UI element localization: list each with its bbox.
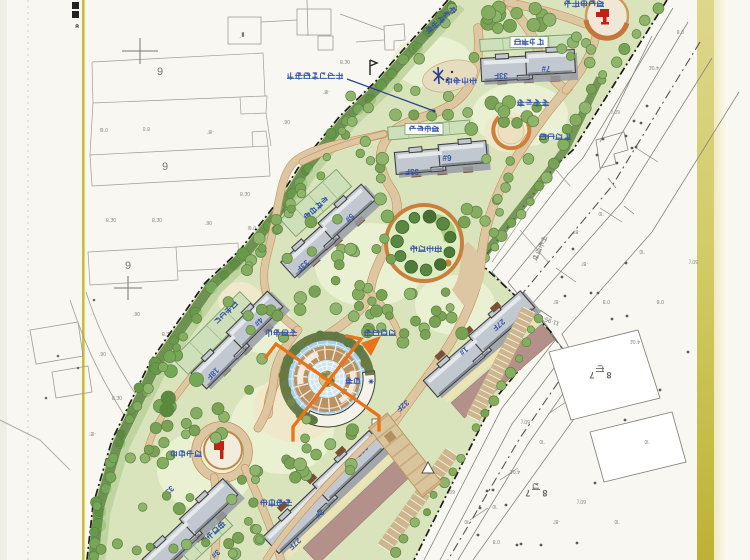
svg-text:·8lˉ: ·8lˉ	[552, 518, 560, 524]
svg-text:·8lˉ: ·8lˉ	[580, 260, 588, 266]
svg-text:7: 7	[589, 370, 594, 380]
svg-text:9: 9	[157, 66, 163, 78]
svg-text:ˉl0: ˉl0	[598, 210, 604, 216]
svg-text:0ˉ8: 0ˉ8	[677, 28, 684, 34]
svg-text:06ˉ: 06ˉ	[282, 118, 290, 124]
svg-text:✳: ✳	[368, 378, 374, 386]
svg-text:60ˉ(: 60ˉ(	[521, 418, 530, 424]
svg-text:·8lˉ: ·8lˉ	[572, 228, 580, 234]
svg-text:9: 9	[125, 260, 131, 272]
svg-text:06ˉ: 06ˉ	[132, 310, 140, 316]
svg-text:0£ˉ8: 0£ˉ8	[340, 58, 350, 64]
svg-text:6#: 6#	[442, 153, 451, 162]
svg-text:0ˉ6l: 0ˉ6l	[248, 224, 256, 230]
svg-text:0£ˉ8: 0£ˉ8	[112, 394, 122, 400]
svg-text:0ˉ8: 0ˉ8	[603, 298, 610, 304]
svg-text:60ˉ(: 60ˉ(	[689, 258, 698, 264]
svg-text:0£ˉ8: 0£ˉ8	[240, 190, 250, 196]
svg-text:8: 8	[606, 370, 611, 380]
svg-text:0ˉ8: 0ˉ8	[493, 538, 500, 544]
svg-text:4ˉ0£: 4ˉ0£	[510, 468, 520, 474]
svg-text:60ˉ(: 60ˉ(	[577, 498, 586, 504]
svg-text:7: 7	[525, 488, 530, 498]
svg-text:0£ˉ8: 0£ˉ8	[106, 216, 116, 222]
svg-text:▮ˉ: ▮ˉ	[239, 31, 244, 37]
svg-text:60ˉ(: 60ˉ(	[611, 108, 620, 114]
svg-text:·l8ˉ: ·l8ˉ	[88, 430, 96, 436]
svg-text:ˉl0: ˉl0	[644, 438, 650, 444]
svg-text:·l8ˉ: ·l8ˉ	[206, 128, 214, 134]
svg-text:«: «	[73, 24, 82, 29]
svg-text:0ˉ8: 0ˉ8	[657, 298, 664, 304]
svg-text:0£ˉ8: 0£ˉ8	[152, 216, 162, 222]
svg-text:·l8ˉ: ·l8ˉ	[322, 88, 330, 94]
svg-text:9: 9	[162, 161, 168, 173]
svg-text:0ˉ6l: 0ˉ6l	[100, 126, 108, 132]
svg-text:7#: 7#	[541, 64, 550, 73]
svg-text:ˉl0: ˉl0	[539, 438, 545, 444]
svg-text:ˉl0: ˉl0	[639, 248, 645, 254]
svg-text:8ˉ0: 8ˉ0	[143, 125, 150, 131]
svg-text:4ˉ0£: 4ˉ0£	[649, 64, 659, 70]
svg-text:ˉl0: ˉl0	[614, 518, 620, 524]
svg-text:06ˉ: 06ˉ	[204, 219, 212, 225]
svg-text:8: 8	[542, 488, 547, 498]
svg-text:4ˉ0£: 4ˉ0£	[630, 338, 640, 344]
svg-text:ˉl0: ˉl0	[492, 503, 498, 509]
svg-text:·8lˉ: ·8lˉ	[552, 298, 560, 304]
svg-text:06ˉ: 06ˉ	[98, 350, 106, 356]
svg-text:33F: 33F	[405, 167, 419, 176]
svg-text:33F: 33F	[494, 71, 508, 80]
svg-text:ˉl0: ˉl0	[464, 518, 470, 524]
